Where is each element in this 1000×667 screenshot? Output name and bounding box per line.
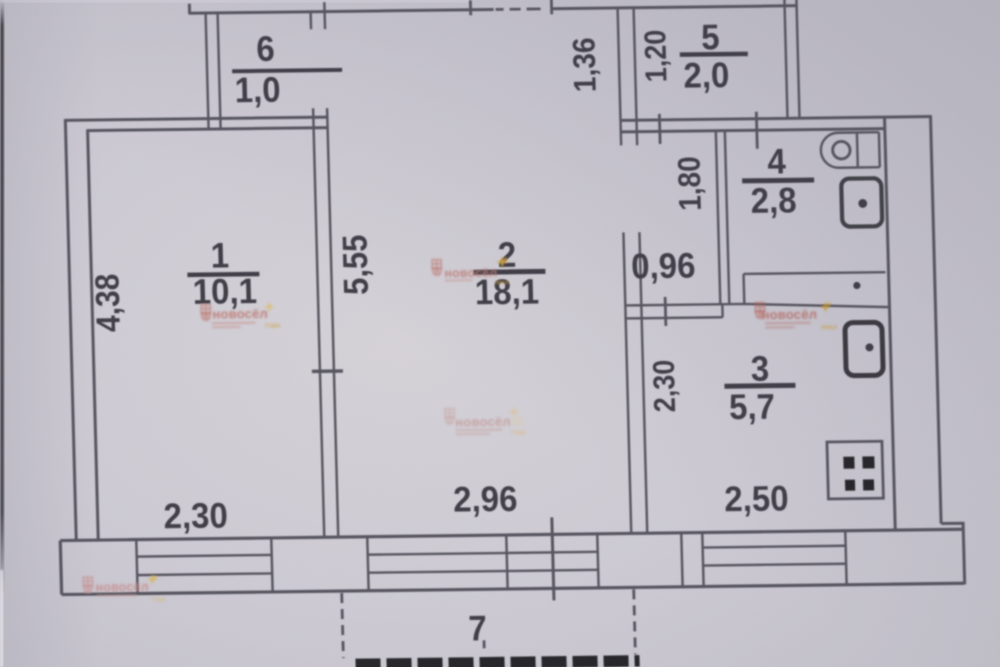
svg-text:1,80: 1,80: [672, 156, 708, 211]
svg-text:ГОДА: ГОДА: [511, 430, 526, 436]
svg-text:новосёл: новосёл: [95, 580, 149, 595]
svg-text:2,0: 2,0: [683, 56, 730, 96]
svg-text:0,96: 0,96: [631, 246, 696, 286]
svg-text:6: 6: [256, 30, 275, 70]
svg-text:новосёл: новосёл: [761, 307, 817, 323]
svg-text:2,50: 2,50: [724, 479, 789, 519]
svg-text:7: 7: [468, 609, 487, 649]
svg-text:новосёл: новосёл: [444, 266, 497, 281]
svg-text:2,8: 2,8: [750, 181, 797, 221]
svg-text:новосёл: новосёл: [212, 306, 268, 322]
svg-text:4,38: 4,38: [88, 273, 127, 332]
svg-text:2,30: 2,30: [163, 496, 228, 536]
svg-text:1,36: 1,36: [567, 37, 603, 92]
svg-text:УРАЛ: УРАЛ: [821, 325, 837, 331]
svg-text:1,20: 1,20: [639, 29, 674, 82]
svg-text:1: 1: [210, 236, 229, 276]
svg-text:5,7: 5,7: [729, 387, 776, 427]
svg-text:ГОДА: ГОДА: [152, 597, 166, 603]
svg-text:5,55: 5,55: [335, 234, 376, 295]
svg-text:ГОДА: ГОДА: [265, 323, 280, 329]
svg-text:УРАЛ: УРАЛ: [494, 280, 509, 286]
svg-text:4: 4: [767, 142, 786, 182]
svg-text:1,0: 1,0: [234, 71, 281, 111]
svg-text:2,30: 2,30: [647, 359, 682, 412]
svg-text:новосёл: новосёл: [455, 414, 511, 430]
svg-text:2,96: 2,96: [453, 480, 518, 520]
svg-text:5: 5: [701, 18, 720, 58]
